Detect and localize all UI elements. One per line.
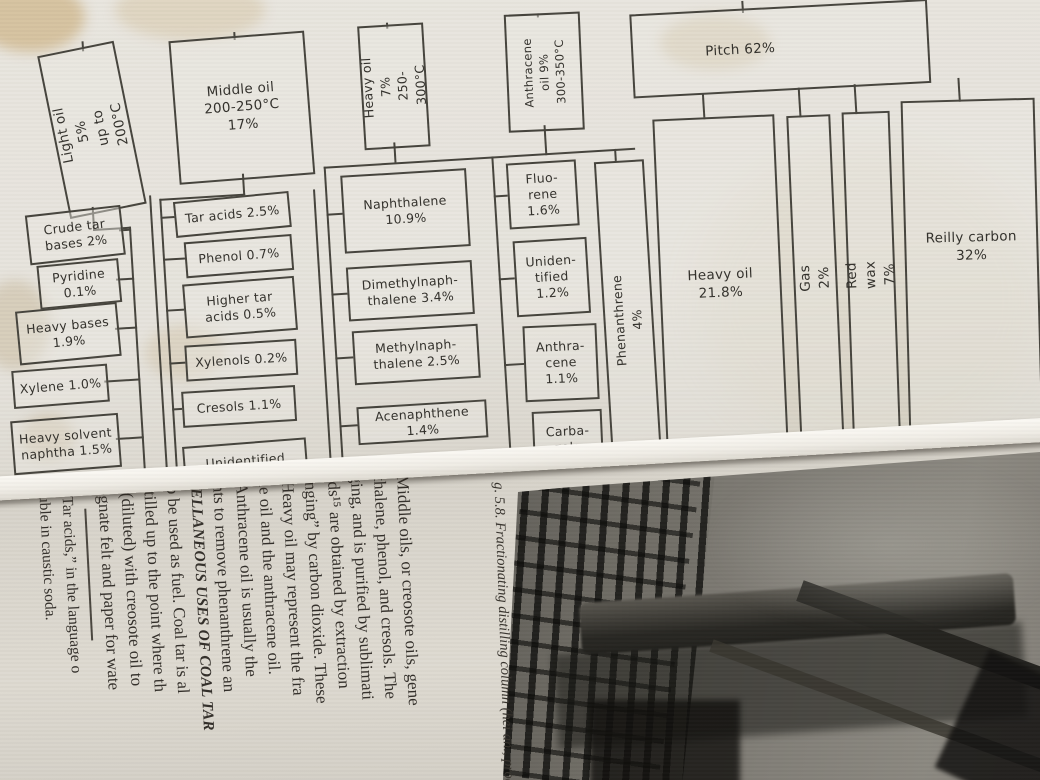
connector-line	[324, 148, 636, 169]
box-red-wax: Red wax 7%	[842, 111, 901, 438]
connector-line	[331, 293, 347, 296]
body-text-rotated: 2. Middle oils, or creosote oils, gene p…	[2, 457, 431, 780]
connector-line	[327, 213, 343, 216]
box-naphthalene: Naphthalene 10.9%	[340, 168, 471, 254]
connector-line	[504, 363, 524, 366]
box-cresols: Cresols 1.1%	[181, 385, 297, 428]
connector-line	[104, 378, 140, 382]
box-label: Light oil 5% up to 200°C	[48, 86, 137, 174]
connector-line	[172, 408, 182, 411]
box-label: Fluo- rene 1.6%	[525, 169, 561, 220]
box-fluorene: Fluo- rene 1.6%	[506, 159, 580, 229]
box-label: Phenol 0.7%	[198, 245, 280, 268]
box-label: Pitch 62%	[705, 40, 776, 61]
box-phenanthrene: Phenanthrene 4%	[594, 159, 663, 479]
connector-line	[163, 257, 185, 260]
box-label: Phenanthrene 4%	[608, 273, 649, 366]
box-label: Middle oil 200-250°C 17%	[202, 78, 281, 136]
connector-line	[160, 216, 174, 219]
connector-line	[166, 309, 184, 312]
box-label: Uniden- tified 1.2%	[525, 251, 579, 303]
connector-line	[339, 424, 357, 427]
box-label: Anthra- cene 1.1%	[536, 337, 587, 388]
box-label: Methylnaph- thalene 2.5%	[372, 336, 460, 374]
box-label: Gas 2%	[796, 257, 835, 299]
box-label: Reilly carbon 32%	[925, 228, 1017, 265]
box-heavy-bases: Heavy bases 1.9%	[15, 302, 122, 366]
box-xylene: Xylene 1.0%	[11, 364, 110, 409]
box-gas: Gas 2%	[786, 114, 844, 442]
figure-caption-rotated: g. 5.8. Fractionating distilling column …	[438, 482, 521, 780]
box-label: Acenaphthene 1.4%	[359, 402, 487, 442]
box-higher-tar-acids: Higher tar acids 0.5%	[182, 276, 298, 339]
box-label: Crude tar bases 2%	[42, 215, 108, 254]
connector-line	[702, 93, 706, 119]
box-label: Anthracene oil 9% 300-350°C	[519, 35, 570, 109]
connector-line	[957, 78, 960, 102]
box-reilly-carbon: Reilly carbon 32%	[901, 98, 1040, 435]
box-label: Dimethylnaph- thalene 3.4%	[361, 272, 459, 310]
connector-line	[798, 88, 802, 118]
box-xylenols: Xylenols 0.2%	[184, 339, 298, 382]
box-unidentified-anthracene: Uniden- tified 1.2%	[513, 237, 592, 317]
box-acenaphthene: Acenaphthene 1.4%	[356, 399, 488, 445]
box-label: Cresols 1.1%	[196, 396, 282, 417]
connector-line	[854, 84, 858, 114]
box-dimethylnaphthalene: Dimethylnaph- thalene 3.4%	[346, 260, 475, 322]
box-heavy-solvent-naphtha: Heavy solvent naphtha 1.5%	[10, 413, 122, 475]
box-light-oil: Light oil 5% up to 200°C	[37, 41, 147, 219]
box-label: Heavy oil 7% 250-300°C	[357, 53, 431, 119]
box-label: Xylenols 0.2%	[195, 349, 288, 371]
box-label: Pyridine 0.1%	[51, 265, 107, 302]
connector-line	[335, 356, 353, 359]
box-methylnaphthalene: Methylnaph- thalene 2.5%	[352, 324, 481, 386]
box-label: Tar acids 2.5%	[184, 202, 280, 227]
box-heavy-oil-fraction: Heavy oil 7% 250-300°C	[357, 22, 430, 150]
box-label: Heavy solvent naphtha 1.5%	[18, 424, 113, 464]
box-middle-oil: Middle oil 200-250°C 17%	[168, 31, 315, 185]
box-phenol: Phenol 0.7%	[184, 234, 294, 278]
box-crude-tar-bases: Crude tar bases 2%	[25, 205, 126, 266]
box-pitch: Pitch 62%	[629, 0, 931, 98]
book-photo-scene: 2. Middle oils, or creosote oils, gene p…	[0, 0, 1040, 780]
connector-line	[116, 436, 144, 440]
box-label: Naphthalene 10.9%	[363, 192, 448, 230]
box-label: Red wax 7%	[842, 252, 900, 298]
connector-line	[499, 277, 515, 280]
footnote-rule	[84, 509, 93, 641]
box-label: Xylene 1.0%	[19, 375, 102, 398]
box-label: Heavy bases 1.9%	[25, 314, 111, 354]
connector-line	[494, 195, 508, 198]
box-heavy-oil-pitch: Heavy oil 21.8%	[652, 114, 789, 455]
box-label: Heavy oil 21.8%	[687, 266, 754, 304]
photo-dark-base	[590, 700, 740, 780]
box-label: Higher tar acids 0.5%	[203, 288, 277, 326]
box-anthracene-oil: Anthracene oil 9% 300-350°C	[504, 12, 585, 133]
connector-line	[313, 189, 334, 493]
connector-line	[159, 199, 179, 501]
box-anthracene: Anthra- cene 1.1%	[522, 323, 599, 402]
connector-line	[169, 362, 185, 365]
